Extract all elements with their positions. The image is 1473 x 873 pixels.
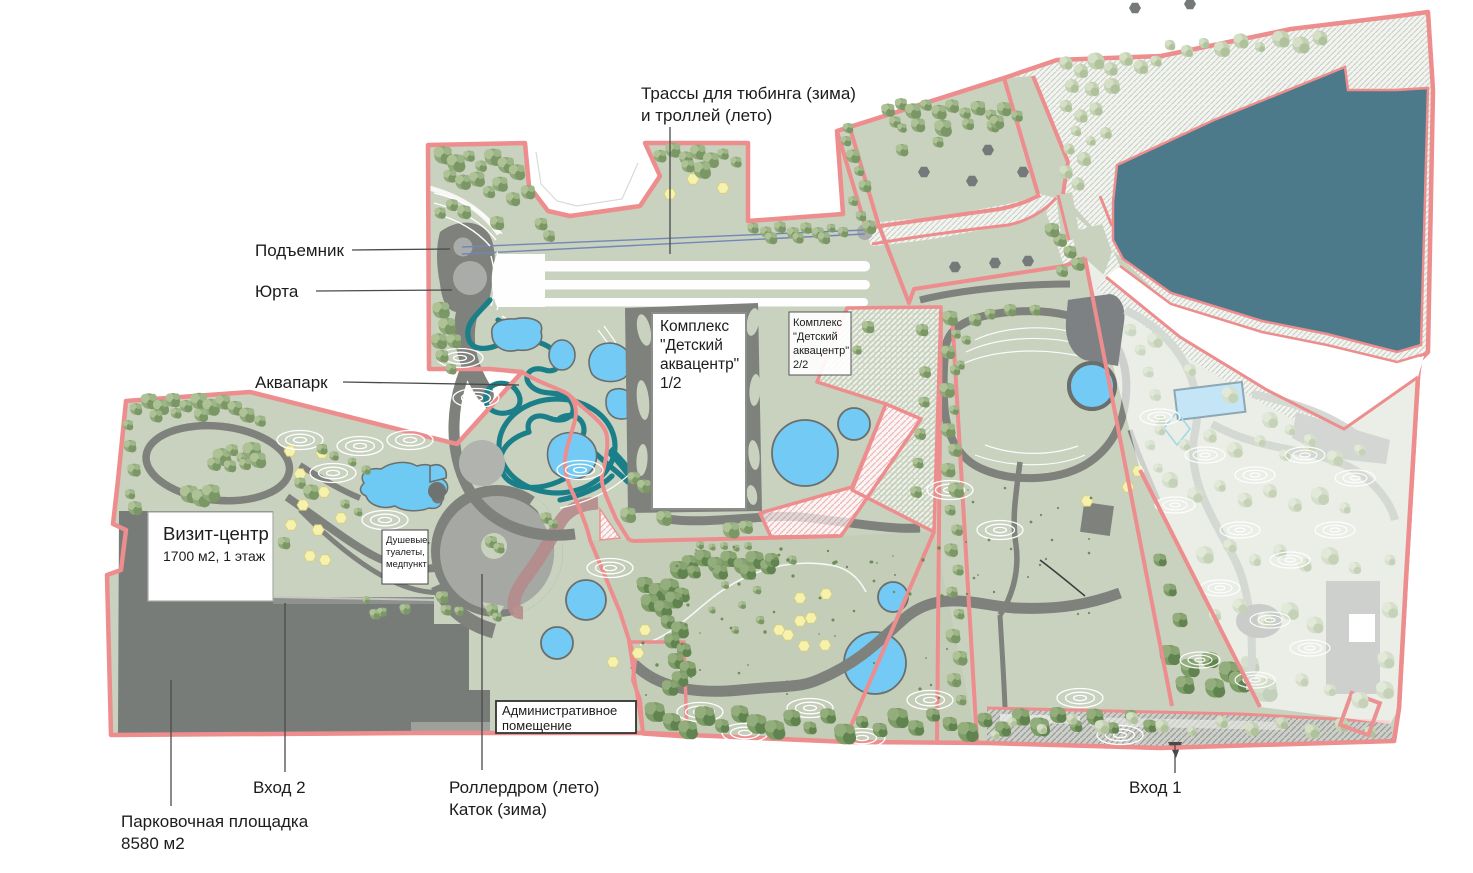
svg-text:Трассы для тюбинга (зима): Трассы для тюбинга (зима) — [641, 84, 856, 103]
svg-text:Вход 2: Вход 2 — [253, 778, 306, 797]
svg-text:аквацентр": аквацентр" — [793, 345, 849, 357]
svg-text:Комплекс: Комплекс — [660, 318, 729, 335]
svg-text:помещение: помещение — [502, 718, 572, 733]
svg-text:Аквапарк: Аквапарк — [255, 373, 328, 392]
svg-text:1/2: 1/2 — [660, 375, 682, 392]
svg-text:1700 м2, 1 этаж: 1700 м2, 1 этаж — [163, 548, 266, 564]
svg-text:8580 м2: 8580 м2 — [121, 834, 185, 853]
svg-text:Роллердром (лето): Роллердром (лето) — [449, 778, 599, 797]
svg-text:Душевые,: Душевые, — [386, 535, 430, 546]
svg-text:Административное: Административное — [502, 703, 617, 718]
svg-text:туалеты,: туалеты, — [386, 547, 425, 558]
svg-text:2/2: 2/2 — [793, 359, 808, 371]
svg-text:Парковочная площадка: Парковочная площадка — [121, 812, 309, 831]
svg-text:Вход 1: Вход 1 — [1129, 778, 1182, 797]
svg-text:Визит-центр: Визит-центр — [163, 523, 269, 544]
svg-text:Подъемник: Подъемник — [255, 241, 344, 260]
svg-text:Комплекс: Комплекс — [793, 317, 843, 329]
svg-text:Каток (зима): Каток (зима) — [449, 800, 547, 819]
svg-text:аквацентр": аквацентр" — [660, 356, 739, 373]
svg-text:медпункт: медпункт — [386, 559, 428, 570]
svg-text:"Детский: "Детский — [793, 331, 838, 343]
svg-text:и троллей (лето): и троллей (лето) — [641, 106, 772, 125]
svg-text:"Детский: "Детский — [660, 337, 723, 354]
svg-text:Юрта: Юрта — [255, 282, 299, 301]
